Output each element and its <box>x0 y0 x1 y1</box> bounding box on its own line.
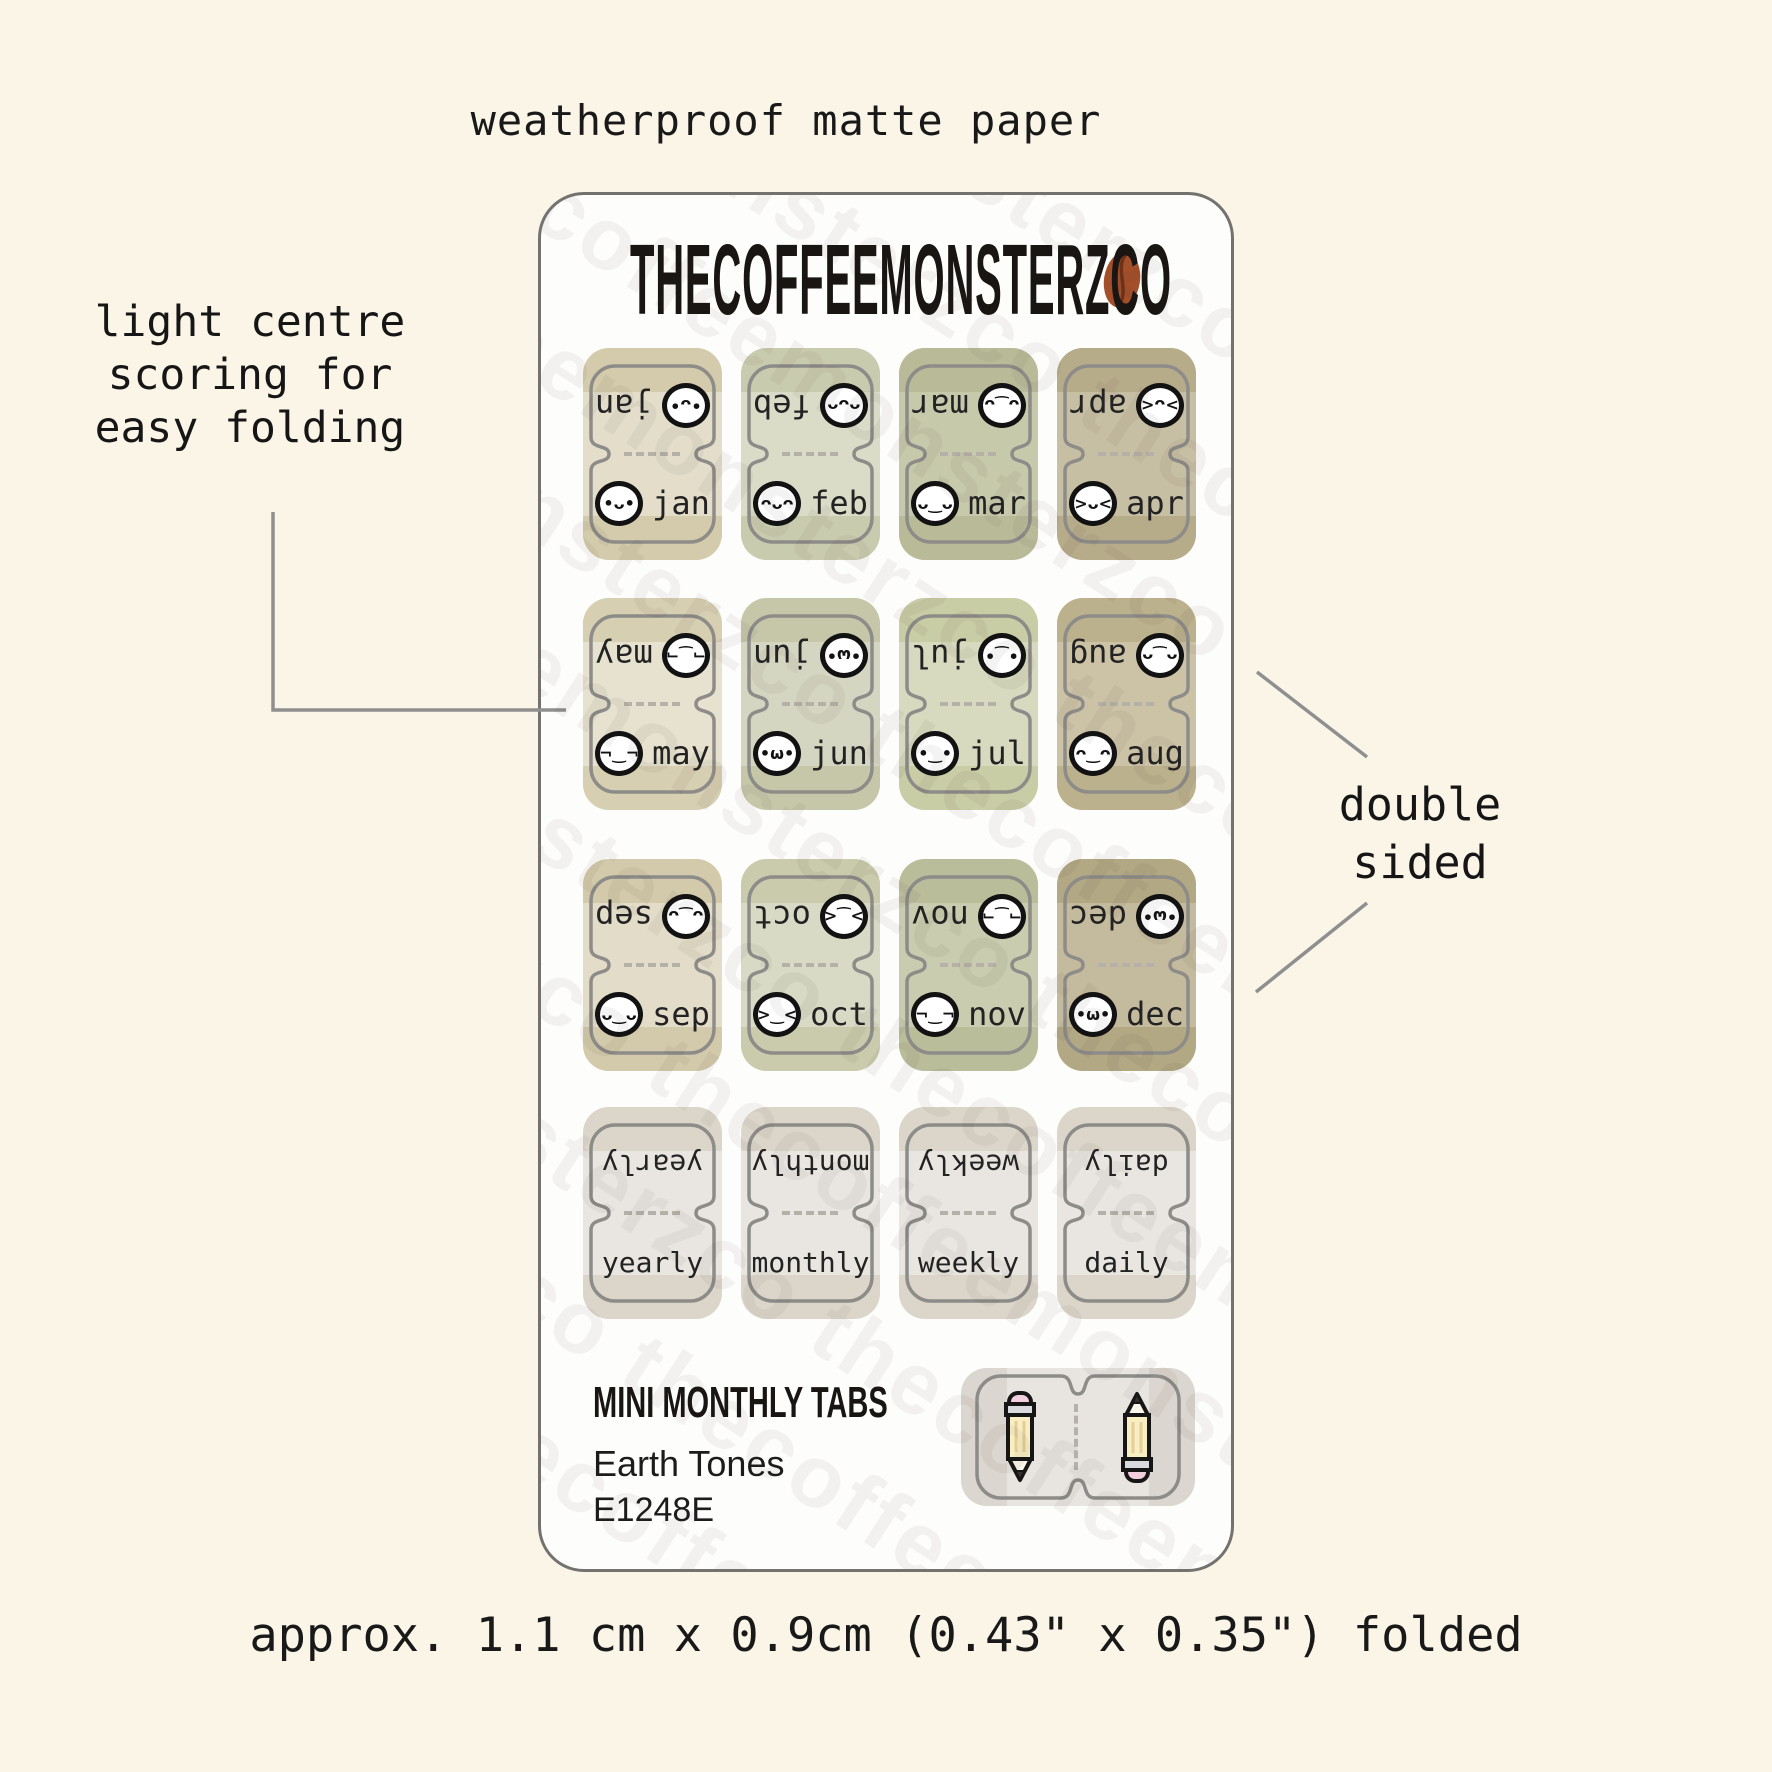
tab-top-half: weekly <box>907 1126 1030 1204</box>
tab-bottom-half: >‿< oct <box>749 975 872 1053</box>
tab-label: daily <box>1084 1149 1168 1182</box>
tab-bottom-half: ᴗ‿ᴗ mar <box>907 464 1030 542</box>
product-title: MINI MONTHLY TABS <box>593 1381 883 1429</box>
tab-face-icon: ¬‿¬ <box>595 731 643 776</box>
sticker-tab: ᴗ‿ᴗ mar ᴗ‿ᴗ mar <box>899 348 1038 560</box>
fold-line <box>624 1211 680 1215</box>
product-title-text: MINI MONTHLY TABS <box>593 1381 888 1425</box>
tab-face-icon: >‿< <box>820 895 868 940</box>
tab-face-icon: ᴗ‿ᴗ <box>978 384 1026 429</box>
tab-label: sep <box>595 898 653 936</box>
tab-top-half: >ᴗ< apr <box>1065 367 1188 445</box>
sticker-tab: >ᴗ< apr >ᴗ< apr <box>1057 348 1196 560</box>
tab-label: monthly <box>751 1246 869 1279</box>
tab-face-icon: ᴖᴗᴖ <box>820 384 868 429</box>
sticker-tab: •ω• jun •ω• jun <box>741 598 880 810</box>
fold-line <box>782 702 838 706</box>
sticker-tab: ᴖ‿ᴖ aug ᴖ‿ᴖ aug <box>1057 598 1196 810</box>
tab-top-half: ᴖᴗᴖ feb <box>749 367 872 445</box>
tab-top-half: •‿• jul <box>907 617 1030 695</box>
tab-label: feb <box>810 484 868 522</box>
tab-label: dec <box>1126 995 1184 1033</box>
product-info: MINI MONTHLY TABS Earth Tones E1248E <box>593 1381 883 1530</box>
tab-top-half: •ᴗ• jan <box>591 367 714 445</box>
tab-face-icon: •ᴗ• <box>662 384 710 429</box>
product-subtitle: Earth Tones <box>593 1443 883 1485</box>
sticker-tab: ¬‿¬ may ¬‿¬ may <box>583 598 722 810</box>
fold-line <box>940 963 996 967</box>
sticker-tab: ᴖᴗᴖ feb ᴖᴗᴖ feb <box>741 348 880 560</box>
tab-face-icon: •ω• <box>753 731 801 776</box>
tab-label: dec <box>1069 898 1127 936</box>
tab-face-icon: •‿• <box>978 634 1026 679</box>
tab-bottom-half: •ω• jun <box>749 714 872 792</box>
tab-label: nov <box>911 898 969 936</box>
tab-face-icon: >ᴗ< <box>1136 384 1184 429</box>
fold-line <box>940 702 996 706</box>
tab-face-icon: ¬‿¬ <box>911 992 959 1037</box>
tab-bottom-half: weekly <box>907 1223 1030 1301</box>
tab-face-icon: >‿< <box>753 992 801 1037</box>
tab-bottom-half: ᴗ‿ᴗ sep <box>591 975 714 1053</box>
tab-top-half: ᴗ‿ᴗ sep <box>591 878 714 956</box>
tab-label: monthly <box>752 1149 870 1182</box>
tab-top-half: •ω• jun <box>749 617 872 695</box>
tab-top-half: ᴖ‿ᴖ aug <box>1065 617 1188 695</box>
tab-face-icon: >ᴗ< <box>1069 481 1117 526</box>
sticker-tab: daily daily <box>1057 1107 1196 1319</box>
tab-label: apr <box>1126 484 1184 522</box>
sticker-tab: •ᴗ• jan •ᴗ• jan <box>583 348 722 560</box>
tab-bottom-half: ¬‿¬ may <box>591 714 714 792</box>
sticker-tab: ¬‿¬ nov ¬‿¬ nov <box>899 859 1038 1071</box>
tab-label: jul <box>911 637 969 675</box>
tab-label: oct <box>753 898 811 936</box>
tab-label: mar <box>968 484 1026 522</box>
tab-top-half: yearly <box>591 1126 714 1204</box>
tab-face-icon: ¬‿¬ <box>662 634 710 679</box>
tab-label: aug <box>1126 734 1184 772</box>
tab-face-icon: ᴖ‿ᴖ <box>1136 634 1184 679</box>
sticker-tab: ᴗ‿ᴗ sep ᴗ‿ᴗ sep <box>583 859 722 1071</box>
tab-label: daily <box>1084 1246 1168 1279</box>
fold-line <box>1098 963 1154 967</box>
product-sku: E1248E <box>593 1491 883 1530</box>
pencil-icon <box>1116 1389 1158 1485</box>
tab-bottom-half: ¬‿¬ nov <box>907 975 1030 1053</box>
fold-line <box>1098 1211 1154 1215</box>
tab-label: aug <box>1069 637 1127 675</box>
tab-label: may <box>652 734 710 772</box>
sticker-tab: monthly monthly <box>741 1107 880 1319</box>
fold-line <box>782 963 838 967</box>
tab-top-half: •ω• dec <box>1065 878 1188 956</box>
tab-top-half: ¬‿¬ may <box>591 617 714 695</box>
pencil-tab-right-half <box>1078 1368 1195 1506</box>
tab-top-half: monthly <box>749 1126 872 1204</box>
fold-line <box>782 452 838 456</box>
tab-label: yearly <box>602 1149 703 1182</box>
product-photo: weatherproof matte paper approx. 1.1 cm … <box>0 0 1772 1772</box>
fold-line <box>1098 702 1154 706</box>
fold-line <box>624 963 680 967</box>
tab-label: apr <box>1069 387 1127 425</box>
tab-face-icon: •ᴗ• <box>595 481 643 526</box>
sticker-tab: •ω• dec •ω• dec <box>1057 859 1196 1071</box>
tab-label: weekly <box>918 1149 1019 1182</box>
tab-bottom-half: yearly <box>591 1223 714 1301</box>
tab-label: jun <box>810 734 868 772</box>
pencil-sample-tab <box>961 1368 1195 1506</box>
tab-label: sep <box>652 995 710 1033</box>
tab-face-icon: ᴗ‿ᴗ <box>911 481 959 526</box>
fold-line <box>940 452 996 456</box>
tab-label: weekly <box>918 1246 1019 1279</box>
fold-line <box>940 1211 996 1215</box>
fold-line <box>624 702 680 706</box>
tab-face-icon: ᴗ‿ᴗ <box>662 895 710 940</box>
fold-line <box>782 1211 838 1215</box>
tab-label: mar <box>911 387 969 425</box>
pencil-tab-left-half <box>961 1368 1078 1506</box>
tab-bottom-half: •ᴗ• jan <box>591 464 714 542</box>
tab-label: nov <box>968 995 1026 1033</box>
tab-top-half: >‿< oct <box>749 878 872 956</box>
tab-label: jun <box>753 637 811 675</box>
tab-label: jan <box>652 484 710 522</box>
tab-label: jan <box>595 387 653 425</box>
tab-label: feb <box>753 387 811 425</box>
brand-logo-text: THECOFFEEMONSTERZCO <box>630 238 1172 322</box>
pencil-icon <box>999 1389 1041 1485</box>
tab-face-icon: •‿• <box>911 731 959 776</box>
tab-label: may <box>595 637 653 675</box>
tab-top-half: ¬‿¬ nov <box>907 878 1030 956</box>
tab-face-icon: ¬‿¬ <box>978 895 1026 940</box>
sticker-tab: >‿< oct >‿< oct <box>741 859 880 1071</box>
tab-top-half: daily <box>1065 1126 1188 1204</box>
tab-bottom-half: monthly <box>749 1223 872 1301</box>
tab-bottom-half: >ᴗ< apr <box>1065 464 1188 542</box>
tab-face-icon: •ω• <box>820 634 868 679</box>
sticker-tab: weekly weekly <box>899 1107 1038 1319</box>
brand-header: THECOFFEEMONSTERZCO <box>541 235 1231 325</box>
tab-label: oct <box>810 995 868 1033</box>
fold-line <box>1098 452 1154 456</box>
tab-face-icon: ᴗ‿ᴗ <box>595 992 643 1037</box>
brand-logo: THECOFFEEMONSTERZCO <box>630 238 1086 322</box>
sticker-tab: yearly yearly <box>583 1107 722 1319</box>
tab-face-icon: •ω• <box>1136 895 1184 940</box>
tab-bottom-half: daily <box>1065 1223 1188 1301</box>
tab-face-icon: ᴖᴗᴖ <box>753 481 801 526</box>
tab-top-half: ᴗ‿ᴗ mar <box>907 367 1030 445</box>
tab-bottom-half: ᴖᴗᴖ feb <box>749 464 872 542</box>
tab-bottom-half: ᴖ‿ᴖ aug <box>1065 714 1188 792</box>
sticker-tab: •‿• jul •‿• jul <box>899 598 1038 810</box>
fold-line <box>624 452 680 456</box>
tab-bottom-half: •ω• dec <box>1065 975 1188 1053</box>
tab-bottom-half: •‿• jul <box>907 714 1030 792</box>
tab-label: jul <box>968 734 1026 772</box>
tab-label: yearly <box>602 1246 703 1279</box>
tab-face-icon: •ω• <box>1069 992 1117 1037</box>
tab-face-icon: ᴖ‿ᴖ <box>1069 731 1117 776</box>
